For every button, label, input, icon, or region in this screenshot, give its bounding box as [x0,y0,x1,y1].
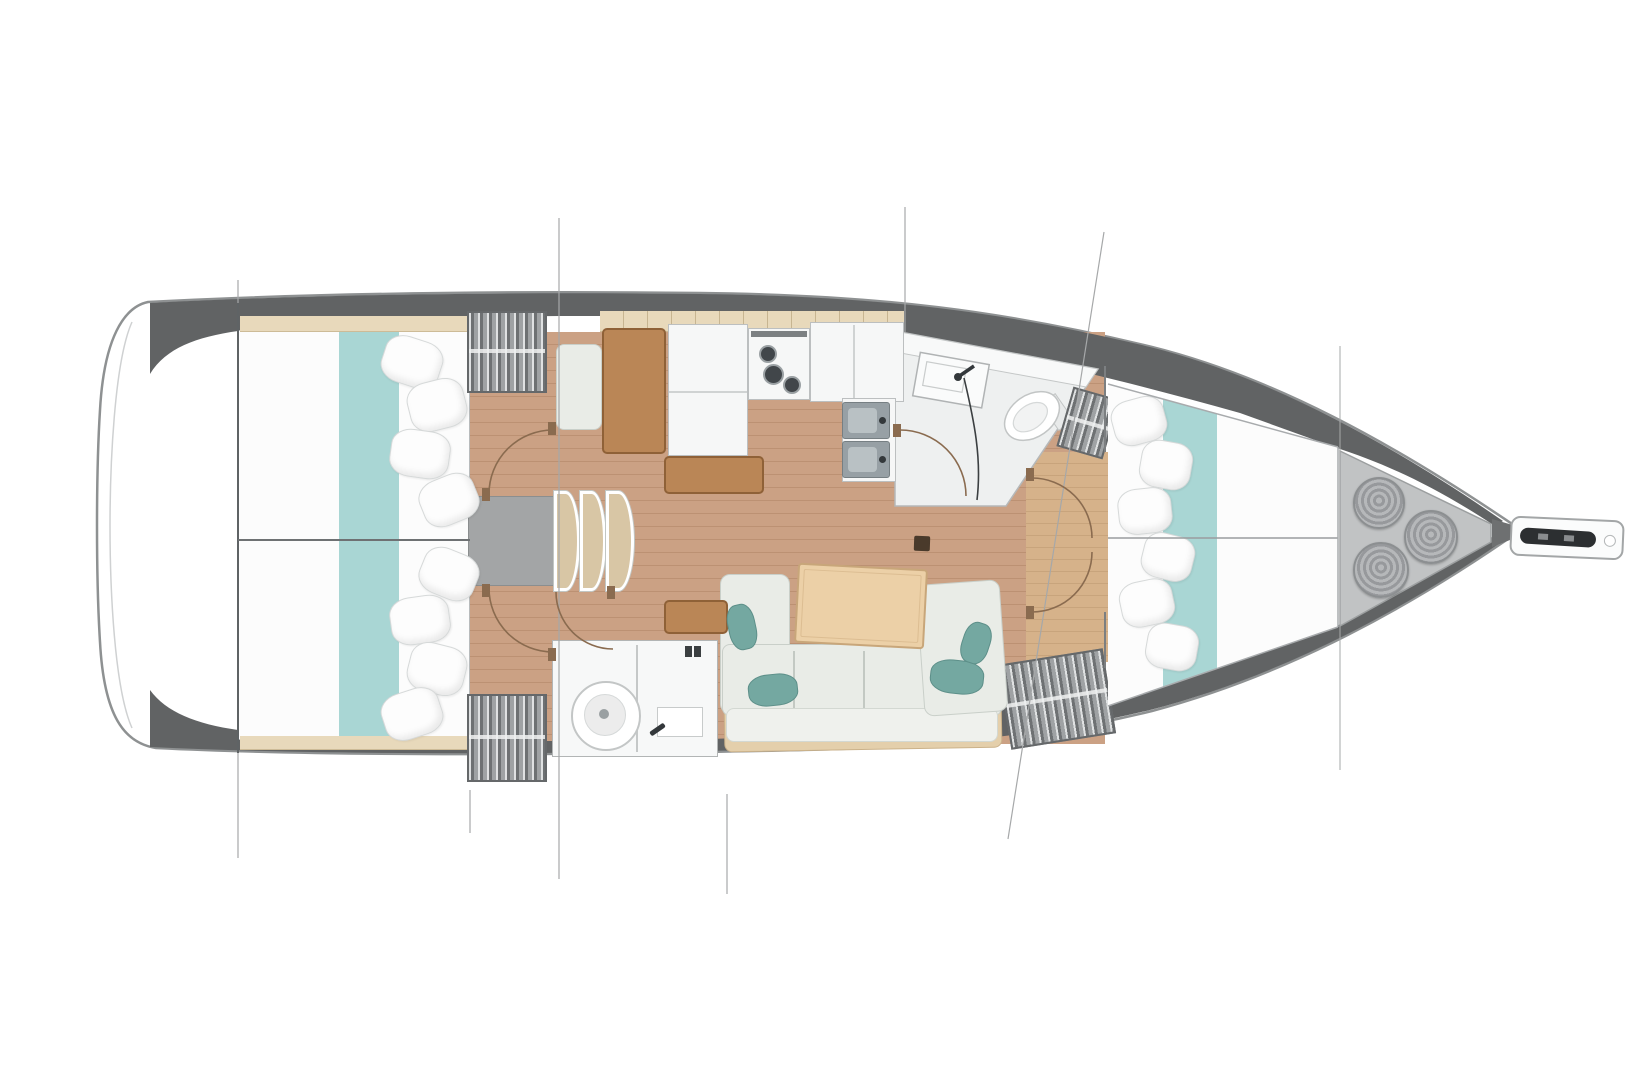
aft-shelf-top [240,316,468,332]
burner [763,364,784,385]
rope-coil [1353,542,1409,598]
chart-table [602,328,666,454]
forward-head [552,640,718,757]
bowsprit [1509,516,1625,561]
nav-seat [556,344,602,430]
wardrobe-aft-top [467,311,547,393]
toilet [571,681,641,751]
wardrobe-forward-bottom [998,648,1116,750]
anchor [1520,527,1597,548]
towel-rail-icon [694,646,701,657]
rope-coil [1404,510,1458,564]
galley-bench [664,456,764,494]
mast-step [914,536,931,552]
sink-basin [842,402,890,439]
stove-knobs [751,331,807,337]
side-table [664,600,728,634]
burner [783,376,801,394]
rope-coil [1353,477,1405,529]
head-basin [657,707,703,737]
galley-cabinet [668,324,748,456]
wardrobe-aft-bottom [467,694,547,782]
stove [748,328,810,400]
pillow [1116,485,1175,536]
sink-basin [842,441,890,478]
salon-table [794,563,928,650]
burner [759,345,777,363]
aft-shelf-bottom [240,736,468,750]
stern-inner-line [110,322,132,728]
forward-cabin-floor [1026,452,1110,662]
companionway-platform [468,496,554,586]
sailboat-floorplan [0,0,1635,1080]
bow-roller [1604,535,1617,548]
towel-rail-icon [685,646,692,657]
galley-counter [810,322,904,402]
